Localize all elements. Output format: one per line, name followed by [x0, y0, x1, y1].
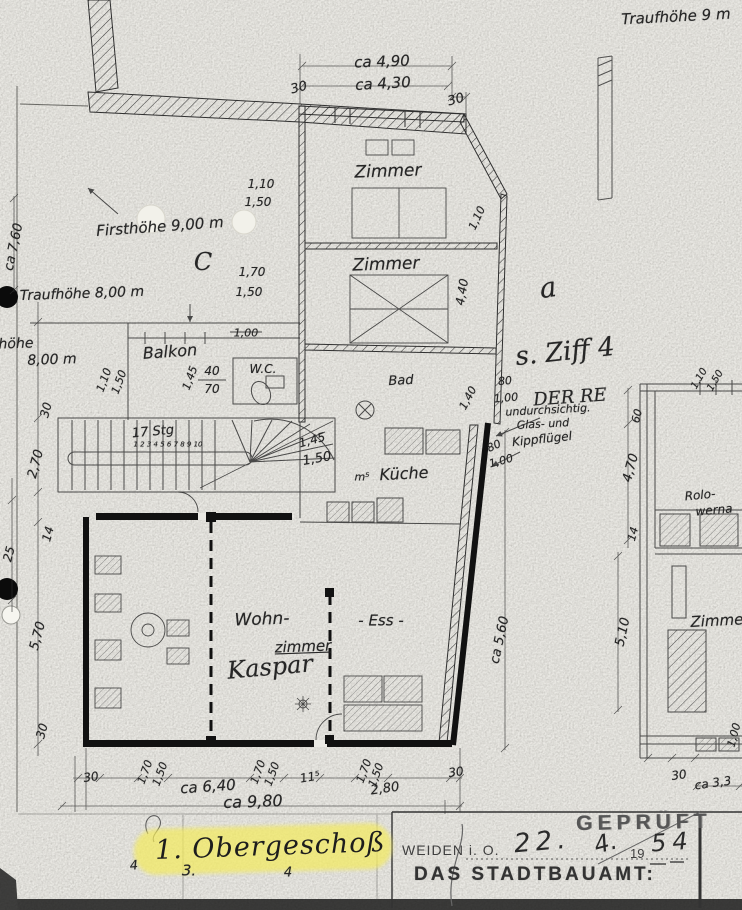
stamp-date-day: 22.	[513, 825, 572, 860]
stamp-year-prefix: 19	[630, 846, 644, 861]
scanned-floorplan-page: 1. Obergeschoß GEPRÜFT WEIDEN i. O. 22. …	[0, 0, 742, 910]
floorplan-drawing	[0, 0, 742, 910]
stamp-city-text: WEIDEN i. O.	[402, 842, 500, 858]
stamp-office-text: DAS STADTBAUAMT:	[414, 864, 656, 886]
stamp-year-handwritten: 54	[650, 827, 694, 858]
